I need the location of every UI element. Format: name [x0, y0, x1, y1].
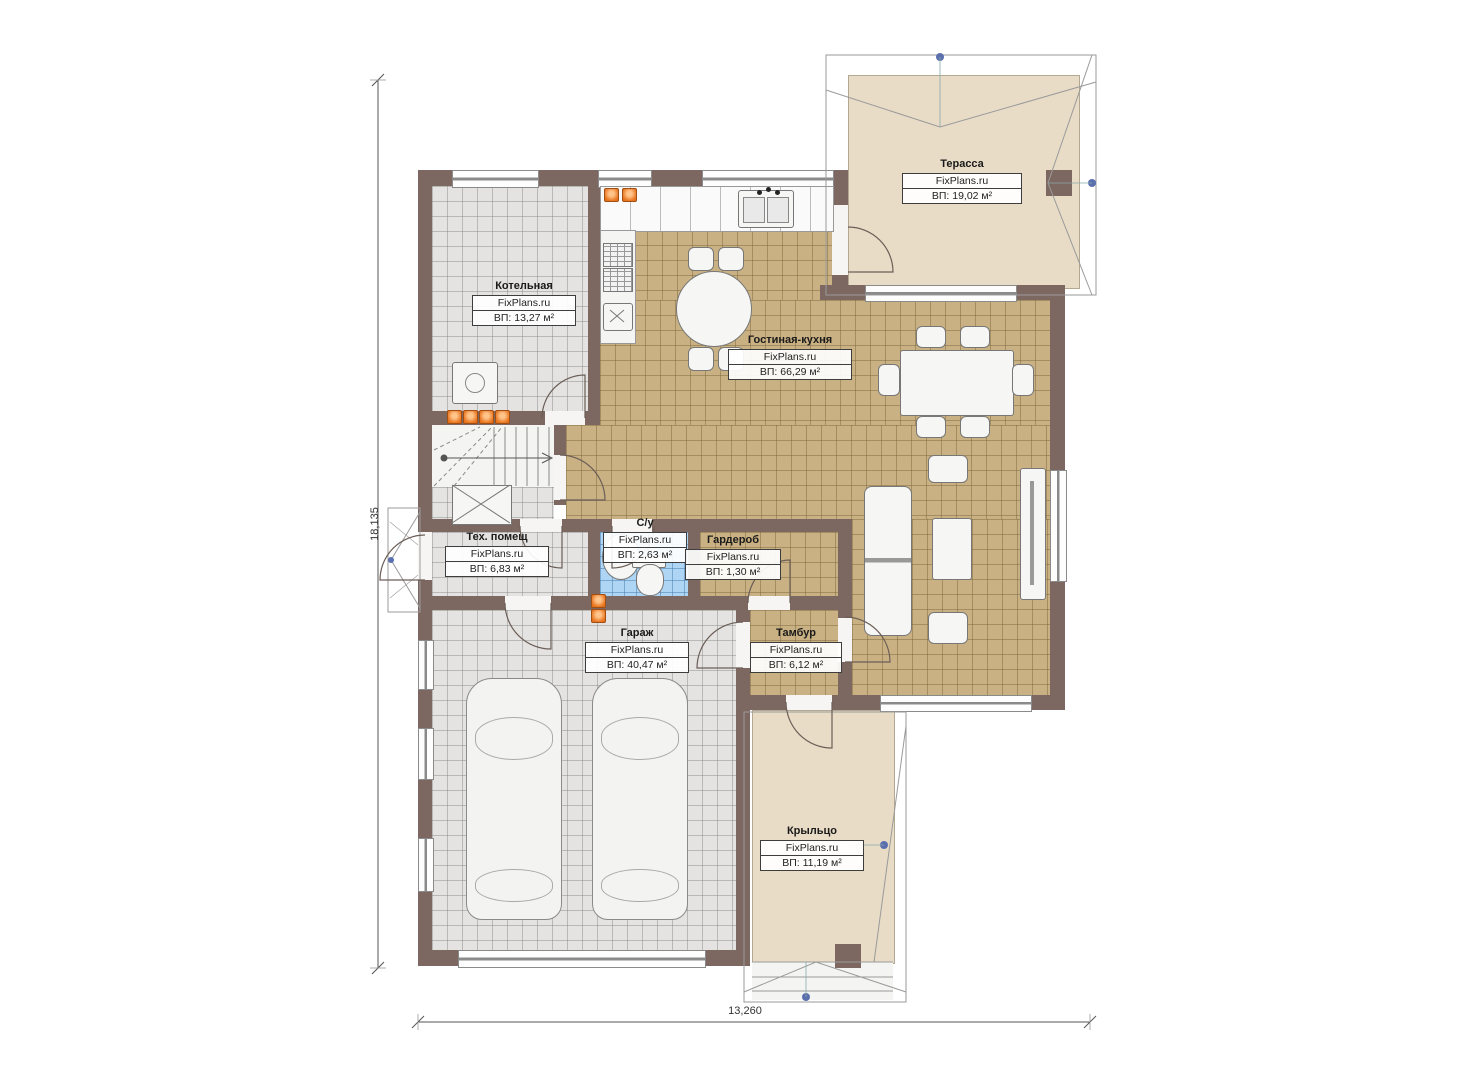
chair: [688, 347, 714, 371]
room-brand: FixPlans.ru: [751, 643, 841, 657]
radiator-icon: [591, 609, 606, 623]
room-label-tech: Тех. помещ FixPlans.ru ВП: 6,83 м²: [445, 531, 549, 577]
room-name: Тамбур: [750, 627, 842, 640]
room-area: ВП: 66,29 м²: [729, 364, 851, 379]
tv-cabinet: [1020, 468, 1046, 600]
wall: [588, 170, 600, 425]
car-icon: [592, 678, 688, 920]
sink-bowl: [743, 197, 765, 223]
garage-door: [458, 950, 706, 968]
radiator-icon: [622, 188, 637, 202]
radiator-icon: [591, 594, 606, 608]
door-opening: [748, 596, 790, 610]
microwave-icon: [603, 268, 633, 292]
room-label-boiler: Котельная FixPlans.ru ВП: 13,27 м²: [472, 280, 576, 326]
radiator-icon: [447, 410, 462, 424]
dimension-label-left: 18,135: [369, 490, 381, 558]
chair: [960, 416, 990, 438]
terrace-post: [1046, 170, 1072, 196]
stove-burner-icon: [775, 190, 780, 195]
room-info-box: FixPlans.ru ВП: 13,27 м²: [472, 295, 576, 326]
boiler-dial: [465, 373, 485, 393]
room-info-box: FixPlans.ru ВП: 6,12 м²: [750, 642, 842, 673]
door-opening: [545, 411, 585, 425]
radiator-icon: [479, 410, 494, 424]
room-brand: FixPlans.ru: [446, 547, 548, 561]
boiler-unit: [452, 362, 498, 404]
room-label-porch: Крыльцо FixPlans.ru ВП: 11,19 м²: [760, 825, 864, 871]
chair: [688, 247, 714, 271]
room-label-terrace: Терасса FixPlans.ru ВП: 19,02 м²: [902, 158, 1022, 204]
chair: [718, 247, 744, 271]
kitchen-sink: [738, 190, 794, 228]
room-info-box: FixPlans.ru ВП: 6,83 м²: [445, 546, 549, 577]
room-brand: FixPlans.ru: [903, 174, 1021, 188]
window: [418, 728, 434, 780]
window: [880, 695, 1032, 712]
room-area: ВП: 13,27 м²: [473, 310, 575, 325]
room-info-box: FixPlans.ru ВП: 2,63 м²: [603, 532, 687, 563]
room-name: Котельная: [472, 280, 576, 293]
radiator-icon: [495, 410, 510, 424]
room-info-box: FixPlans.ru ВП: 40,47 м²: [585, 642, 689, 673]
room-info-box: FixPlans.ru ВП: 66,29 м²: [728, 349, 852, 380]
radiator-icon: [463, 410, 478, 424]
room-name: С/у: [603, 517, 687, 530]
room-name: Тех. помещ: [445, 531, 549, 544]
room-info-box: FixPlans.ru ВП: 11,19 м²: [760, 840, 864, 871]
room-label-garage: Гараж FixPlans.ru ВП: 40,47 м²: [585, 627, 689, 673]
stove-burner-icon: [766, 187, 771, 192]
window: [418, 640, 434, 690]
room-label-tambour: Тамбур FixPlans.ru ВП: 6,12 м²: [750, 627, 842, 673]
room-area: ВП: 6,12 м²: [751, 657, 841, 672]
door-opening: [832, 205, 848, 275]
room-name: Гостиная-кухня: [728, 334, 852, 347]
armchair: [928, 612, 968, 644]
room-brand: FixPlans.ru: [604, 533, 686, 547]
room-brand: FixPlans.ru: [729, 350, 851, 364]
room-brand: FixPlans.ru: [586, 643, 688, 657]
room-area: ВП: 2,63 м²: [604, 547, 686, 562]
room-name: Терасса: [902, 158, 1022, 171]
entrance-door-opening: [786, 695, 832, 710]
door-opening: [554, 455, 566, 500]
room-brand: FixPlans.ru: [473, 296, 575, 310]
room-label-bathroom: С/у FixPlans.ru ВП: 2,63 м²: [603, 517, 687, 563]
door-opening: [505, 596, 551, 610]
washing-machine-icon: [452, 485, 512, 525]
stove-burner-icon: [757, 190, 762, 195]
room-area: ВП: 1,30 м²: [686, 564, 780, 579]
chair: [960, 326, 990, 348]
room-area: ВП: 6,83 м²: [446, 561, 548, 576]
room-name: Гардероб: [685, 534, 781, 547]
tv-screen: [1030, 481, 1034, 585]
window: [1050, 470, 1067, 582]
room-name: Крыльцо: [760, 825, 864, 838]
room-label-wardrobe: Гардероб FixPlans.ru ВП: 1,30 м²: [685, 534, 781, 580]
coffee-table: [932, 518, 972, 580]
window: [418, 838, 434, 892]
dining-table: [900, 350, 1014, 416]
toilet-bowl: [636, 564, 664, 596]
window: [865, 285, 1017, 302]
radiator-icon: [604, 188, 619, 202]
porch-steps: [752, 962, 893, 1000]
room-name: Гараж: [585, 627, 689, 640]
dimension-label-bottom: 13,260: [728, 1005, 762, 1017]
wall: [838, 519, 852, 710]
room-label-living-kitchen: Гостиная-кухня FixPlans.ru ВП: 66,29 м²: [728, 334, 852, 380]
room-area: ВП: 19,02 м²: [903, 188, 1021, 203]
chair: [878, 364, 900, 396]
chair: [1012, 364, 1034, 396]
room-info-box: FixPlans.ru ВП: 19,02 м²: [902, 173, 1022, 204]
living-floor: [566, 425, 1050, 519]
sofa: [864, 486, 912, 636]
window: [452, 170, 539, 188]
oven-icon: [603, 243, 633, 267]
room-brand: FixPlans.ru: [761, 841, 863, 855]
door-opening: [418, 532, 432, 580]
dishwasher-icon: [603, 303, 633, 331]
room-info-box: FixPlans.ru ВП: 1,30 м²: [685, 549, 781, 580]
chair: [916, 416, 946, 438]
stairs-floor: [432, 425, 554, 487]
armchair: [928, 455, 968, 483]
room-brand: FixPlans.ru: [686, 550, 780, 564]
car-icon: [466, 678, 562, 920]
door-opening: [736, 622, 750, 668]
porch-post: [835, 944, 861, 968]
sink-bowl: [767, 197, 789, 223]
floor-plan: Терасса FixPlans.ru ВП: 19,02 м² Котельн…: [0, 0, 1474, 1080]
chair: [916, 326, 946, 348]
room-area: ВП: 40,47 м²: [586, 657, 688, 672]
room-area: ВП: 11,19 м²: [761, 855, 863, 870]
